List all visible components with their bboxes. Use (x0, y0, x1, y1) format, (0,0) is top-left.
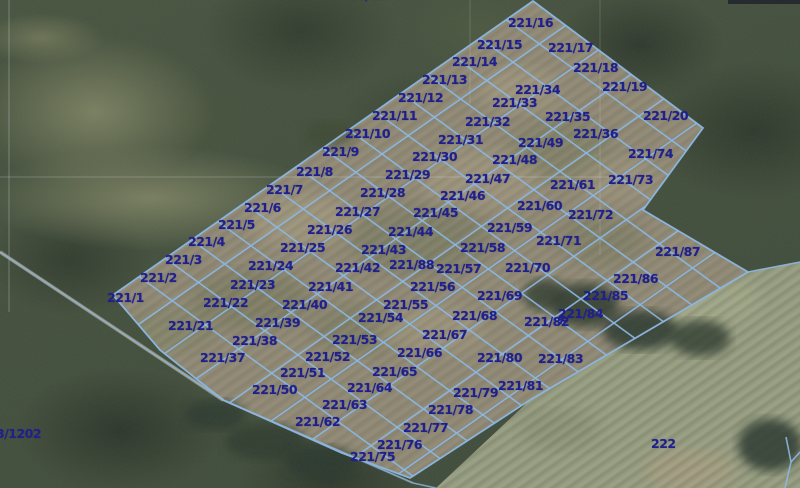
parcel-label: 221/69 (477, 290, 522, 303)
top-edge-strip (728, 0, 800, 4)
parcel-label: 221/43 (361, 244, 406, 257)
parcel-label: 221/70 (505, 262, 550, 275)
parcel-label: 221/35 (545, 111, 590, 124)
parcel-label: 221/18 (573, 62, 618, 75)
parcel-label: 221/68 (452, 310, 497, 323)
parcel-label: 221/15 (477, 39, 522, 52)
parcel-label: 221/88 (389, 259, 434, 272)
parcel-label: 221/41 (308, 281, 353, 294)
parcel-label: 221/85 (583, 290, 628, 303)
parcel-label: 221/54 (358, 312, 403, 325)
parcel-label: 221/58 (460, 242, 505, 255)
parcel-label: 221/50 (252, 384, 297, 397)
parcel-label: 221/67 (422, 329, 467, 342)
parcel-label: 221/27 (335, 206, 380, 219)
parcel-label: 221/11 (372, 110, 417, 123)
parcel-label: 221/9 (322, 146, 359, 159)
parcel-label: 221/37 (200, 352, 245, 365)
parcel-label: 3/1202 (0, 428, 41, 441)
parcel-label: 221/65 (372, 366, 417, 379)
parcel-label: 221/55 (383, 299, 428, 312)
parcel-label: 221/81 (498, 380, 543, 393)
parcel-label: 221/40 (282, 299, 327, 312)
parcel-label: 221/57 (436, 263, 481, 276)
parcel-label: 221/25 (280, 242, 325, 255)
parcel-label: 221/29 (385, 169, 430, 182)
parcel-label: 221/7 (266, 184, 303, 197)
parcel-label: 221/77 (403, 422, 448, 435)
parcel-label: 221/21 (168, 320, 213, 333)
parcel-label: 221/4 (188, 236, 225, 249)
parcel-label: 221/44 (388, 226, 433, 239)
parcel-label: 221/24 (248, 260, 293, 273)
parcel-label: 221/14 (452, 56, 497, 69)
parcel-label: 221/5 (218, 219, 255, 232)
parcel-label: 221/19 (602, 81, 647, 94)
parcel-label: 221/72 (568, 209, 613, 222)
parcel-label: 221/52 (305, 351, 350, 364)
parcel-label: 221/23 (230, 279, 275, 292)
parcel-label: 221/71 (536, 235, 581, 248)
parcel-label: 221/1 (107, 292, 144, 305)
parcel-label: 221/74 (628, 148, 673, 161)
parcel-label: 221/53 (332, 334, 377, 347)
parcel-label: 221/45 (413, 207, 458, 220)
parcel-label: 221/63 (322, 399, 367, 412)
parcel-label: 221/32 (465, 116, 510, 129)
point-marker-icon (558, 315, 566, 324)
parcel-label: 221/3 (165, 254, 202, 267)
parcel-label: 221/39 (255, 317, 300, 330)
parcel-label: 221/16 (508, 17, 553, 30)
parcel-label: 221/12 (398, 92, 443, 105)
parcel-label: 221/10 (345, 128, 390, 141)
parcel-label: 221/26 (307, 224, 352, 237)
parcel-label: 221/60 (517, 200, 562, 213)
parcel-label: 221/56 (410, 281, 455, 294)
parcel-label: 221/2 (140, 272, 177, 285)
parcel-label: 221/51 (280, 367, 325, 380)
parcel-label: 221/62 (295, 416, 340, 429)
parcel-label: 221/83 (538, 353, 583, 366)
parcel-label: 222 (651, 438, 676, 451)
parcel-label: 221/79 (453, 387, 498, 400)
parcel-label: 221/17 (548, 42, 593, 55)
parcel-label: 221/30 (412, 151, 457, 164)
parcel-label: 221/78 (428, 404, 473, 417)
parcel-label: 221/80 (477, 352, 522, 365)
parcel-label: 221/31 (438, 134, 483, 147)
parcel-label: 221/87 (655, 246, 700, 259)
parcel-label: 221/66 (397, 347, 442, 360)
parcel-label: 221/49 (518, 137, 563, 150)
parcel-label: 221/73 (608, 174, 653, 187)
parcel-label: 221/38 (232, 335, 277, 348)
parcel-label: 221/22 (203, 297, 248, 310)
parcel-label: 221/59 (487, 222, 532, 235)
parcel-labels-layer: 221/1221/2221/3221/4221/5221/6221/7221/8… (0, 0, 800, 488)
parcel-label: 221/8 (296, 166, 333, 179)
parcel-label: 221/28 (360, 187, 405, 200)
parcel-label: 221/42 (335, 262, 380, 275)
parcel-label: 221/61 (550, 179, 595, 192)
parcel-label: 221/6 (244, 202, 281, 215)
map-viewport[interactable]: 221/1221/2221/3221/4221/5221/6221/7221/8… (0, 0, 800, 488)
parcel-label: 221/48 (492, 154, 537, 167)
parcel-label: 221/33 (492, 97, 537, 110)
parcel-label: 221/36 (573, 128, 618, 141)
parcel-label: 221/64 (347, 382, 392, 395)
parcel-label: 221/46 (440, 190, 485, 203)
parcel-label: 221/76 (377, 439, 422, 452)
parcel-label: 221/75 (350, 451, 395, 464)
parcel-label: 221/86 (613, 273, 658, 286)
parcel-label: 221/13 (422, 74, 467, 87)
parcel-label: 221/20 (643, 110, 688, 123)
parcel-label: 221/47 (465, 173, 510, 186)
parcel-label: 31/1200 (349, 0, 402, 3)
parcel-label: 221/34 (515, 84, 560, 97)
